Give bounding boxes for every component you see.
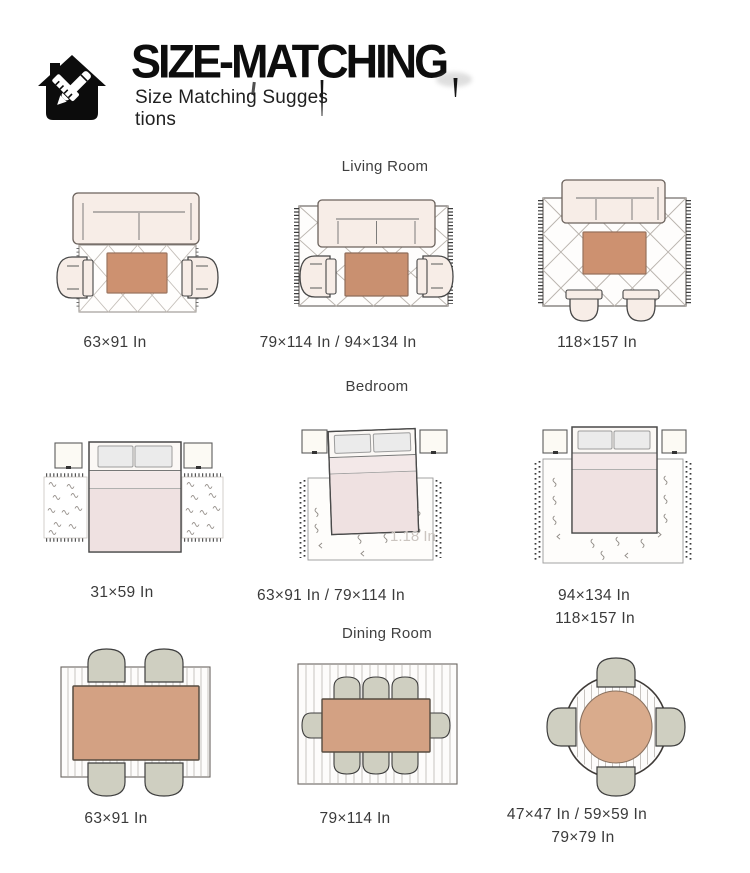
- dining-room-diagram-63x91: [50, 640, 225, 800]
- living-room-section-title: Living Room: [342, 158, 429, 175]
- nightstand-left: [543, 430, 567, 454]
- dining-room-diagram-79x114: [290, 650, 470, 792]
- living-room-diagram-79x114: [285, 178, 470, 343]
- dining-chair-top: [88, 649, 125, 682]
- dining-chair-top: [334, 677, 360, 699]
- dining-chair-bottom: [597, 767, 635, 796]
- pillow: [334, 434, 371, 453]
- blanket: [330, 472, 418, 534]
- pillow: [135, 446, 172, 467]
- dining-table: [73, 686, 199, 760]
- dining-chair-right: [656, 708, 685, 746]
- sheet-band: [573, 454, 657, 470]
- size-label: 31×59 In: [90, 584, 153, 602]
- bed: [328, 429, 419, 535]
- subtitle-line-2: tions: [135, 109, 328, 131]
- sheet-band: [90, 471, 181, 488]
- rug-watermark: 1.18 In: [390, 528, 436, 545]
- coffee-table: [345, 253, 408, 296]
- page-subtitle: Size Matching Sugges tions: [135, 87, 328, 131]
- bed: [89, 442, 181, 552]
- pillow: [373, 433, 411, 452]
- dining-room-section-title: Dining Room: [342, 625, 432, 642]
- bedroom-diagram-31x59: [40, 425, 235, 575]
- nightstand-right: [662, 430, 686, 454]
- dining-chair-top: [145, 649, 183, 682]
- runner-rug-right: [182, 475, 223, 540]
- size-label: 94×134 In: [558, 587, 630, 605]
- size-label: 63×91 In: [83, 334, 146, 352]
- armchair-bottom-left: [566, 290, 602, 321]
- dining-room-diagram-round: [538, 645, 696, 803]
- blanket: [90, 489, 181, 551]
- nightstand-right: [420, 430, 447, 454]
- bedroom-diagram-94x134: [530, 420, 695, 575]
- nightstand-left: [55, 443, 82, 469]
- house-pencil-logo-icon: [37, 54, 107, 122]
- pillow: [614, 431, 650, 449]
- size-label: 63×91 In / 79×114 In: [257, 587, 405, 605]
- size-label: 63×91 In: [84, 810, 147, 828]
- living-room-diagram-118x157: [528, 172, 698, 340]
- armchair-right: [417, 256, 453, 297]
- ink-drip: [453, 78, 458, 97]
- nightstand-left: [302, 430, 327, 454]
- armchair-right: [182, 257, 218, 298]
- dining-chair-right: [430, 713, 450, 738]
- size-matching-infographic: SIZE-MATCHING Size Matching Sugges tions…: [0, 0, 750, 873]
- bedroom-diagram-63x91: 1.18 In: [295, 425, 470, 570]
- dining-chair-bottom: [334, 752, 360, 774]
- subtitle-line-1: Size Matching Sugges: [135, 87, 328, 109]
- size-label: 118×157 In: [557, 334, 637, 352]
- dining-chair-bottom: [392, 752, 418, 774]
- size-label: 79×114 In / 94×134 In: [260, 334, 417, 352]
- bedroom-section-title: Bedroom: [346, 378, 409, 395]
- dining-chair-left: [302, 713, 322, 738]
- armchair-bottom-right: [623, 290, 659, 321]
- sofa: [73, 193, 199, 244]
- sofa: [562, 180, 665, 223]
- pillow: [98, 446, 133, 467]
- dining-table: [322, 699, 430, 752]
- bed: [572, 427, 657, 533]
- pillow: [578, 431, 612, 449]
- dining-chair-top: [597, 658, 635, 687]
- size-label: 118×157 In: [555, 610, 635, 628]
- armchair-left: [57, 257, 93, 298]
- dining-chair-top: [392, 677, 418, 699]
- armchair-left: [300, 256, 336, 297]
- size-label: 79×114 In: [320, 810, 391, 828]
- living-room-diagram-63x91: [45, 178, 240, 340]
- coffee-table: [107, 253, 167, 293]
- dining-chair-left: [547, 708, 576, 746]
- dining-chair-top: [363, 677, 389, 699]
- page-title: SIZE-MATCHING: [131, 34, 446, 89]
- dining-chair-bottom: [145, 763, 183, 796]
- nightstand-right: [184, 443, 212, 469]
- dining-chair-bottom: [88, 763, 125, 796]
- round-dining-table: [580, 691, 652, 763]
- sheet-band: [330, 455, 416, 473]
- sofa: [318, 200, 435, 247]
- dining-chair-bottom: [363, 752, 389, 774]
- blanket: [573, 470, 657, 532]
- size-label: 79×79 In: [551, 829, 614, 847]
- size-label: 47×47 In / 59×59 In: [507, 806, 647, 824]
- runner-rug-left: [44, 475, 87, 540]
- coffee-table: [583, 232, 646, 274]
